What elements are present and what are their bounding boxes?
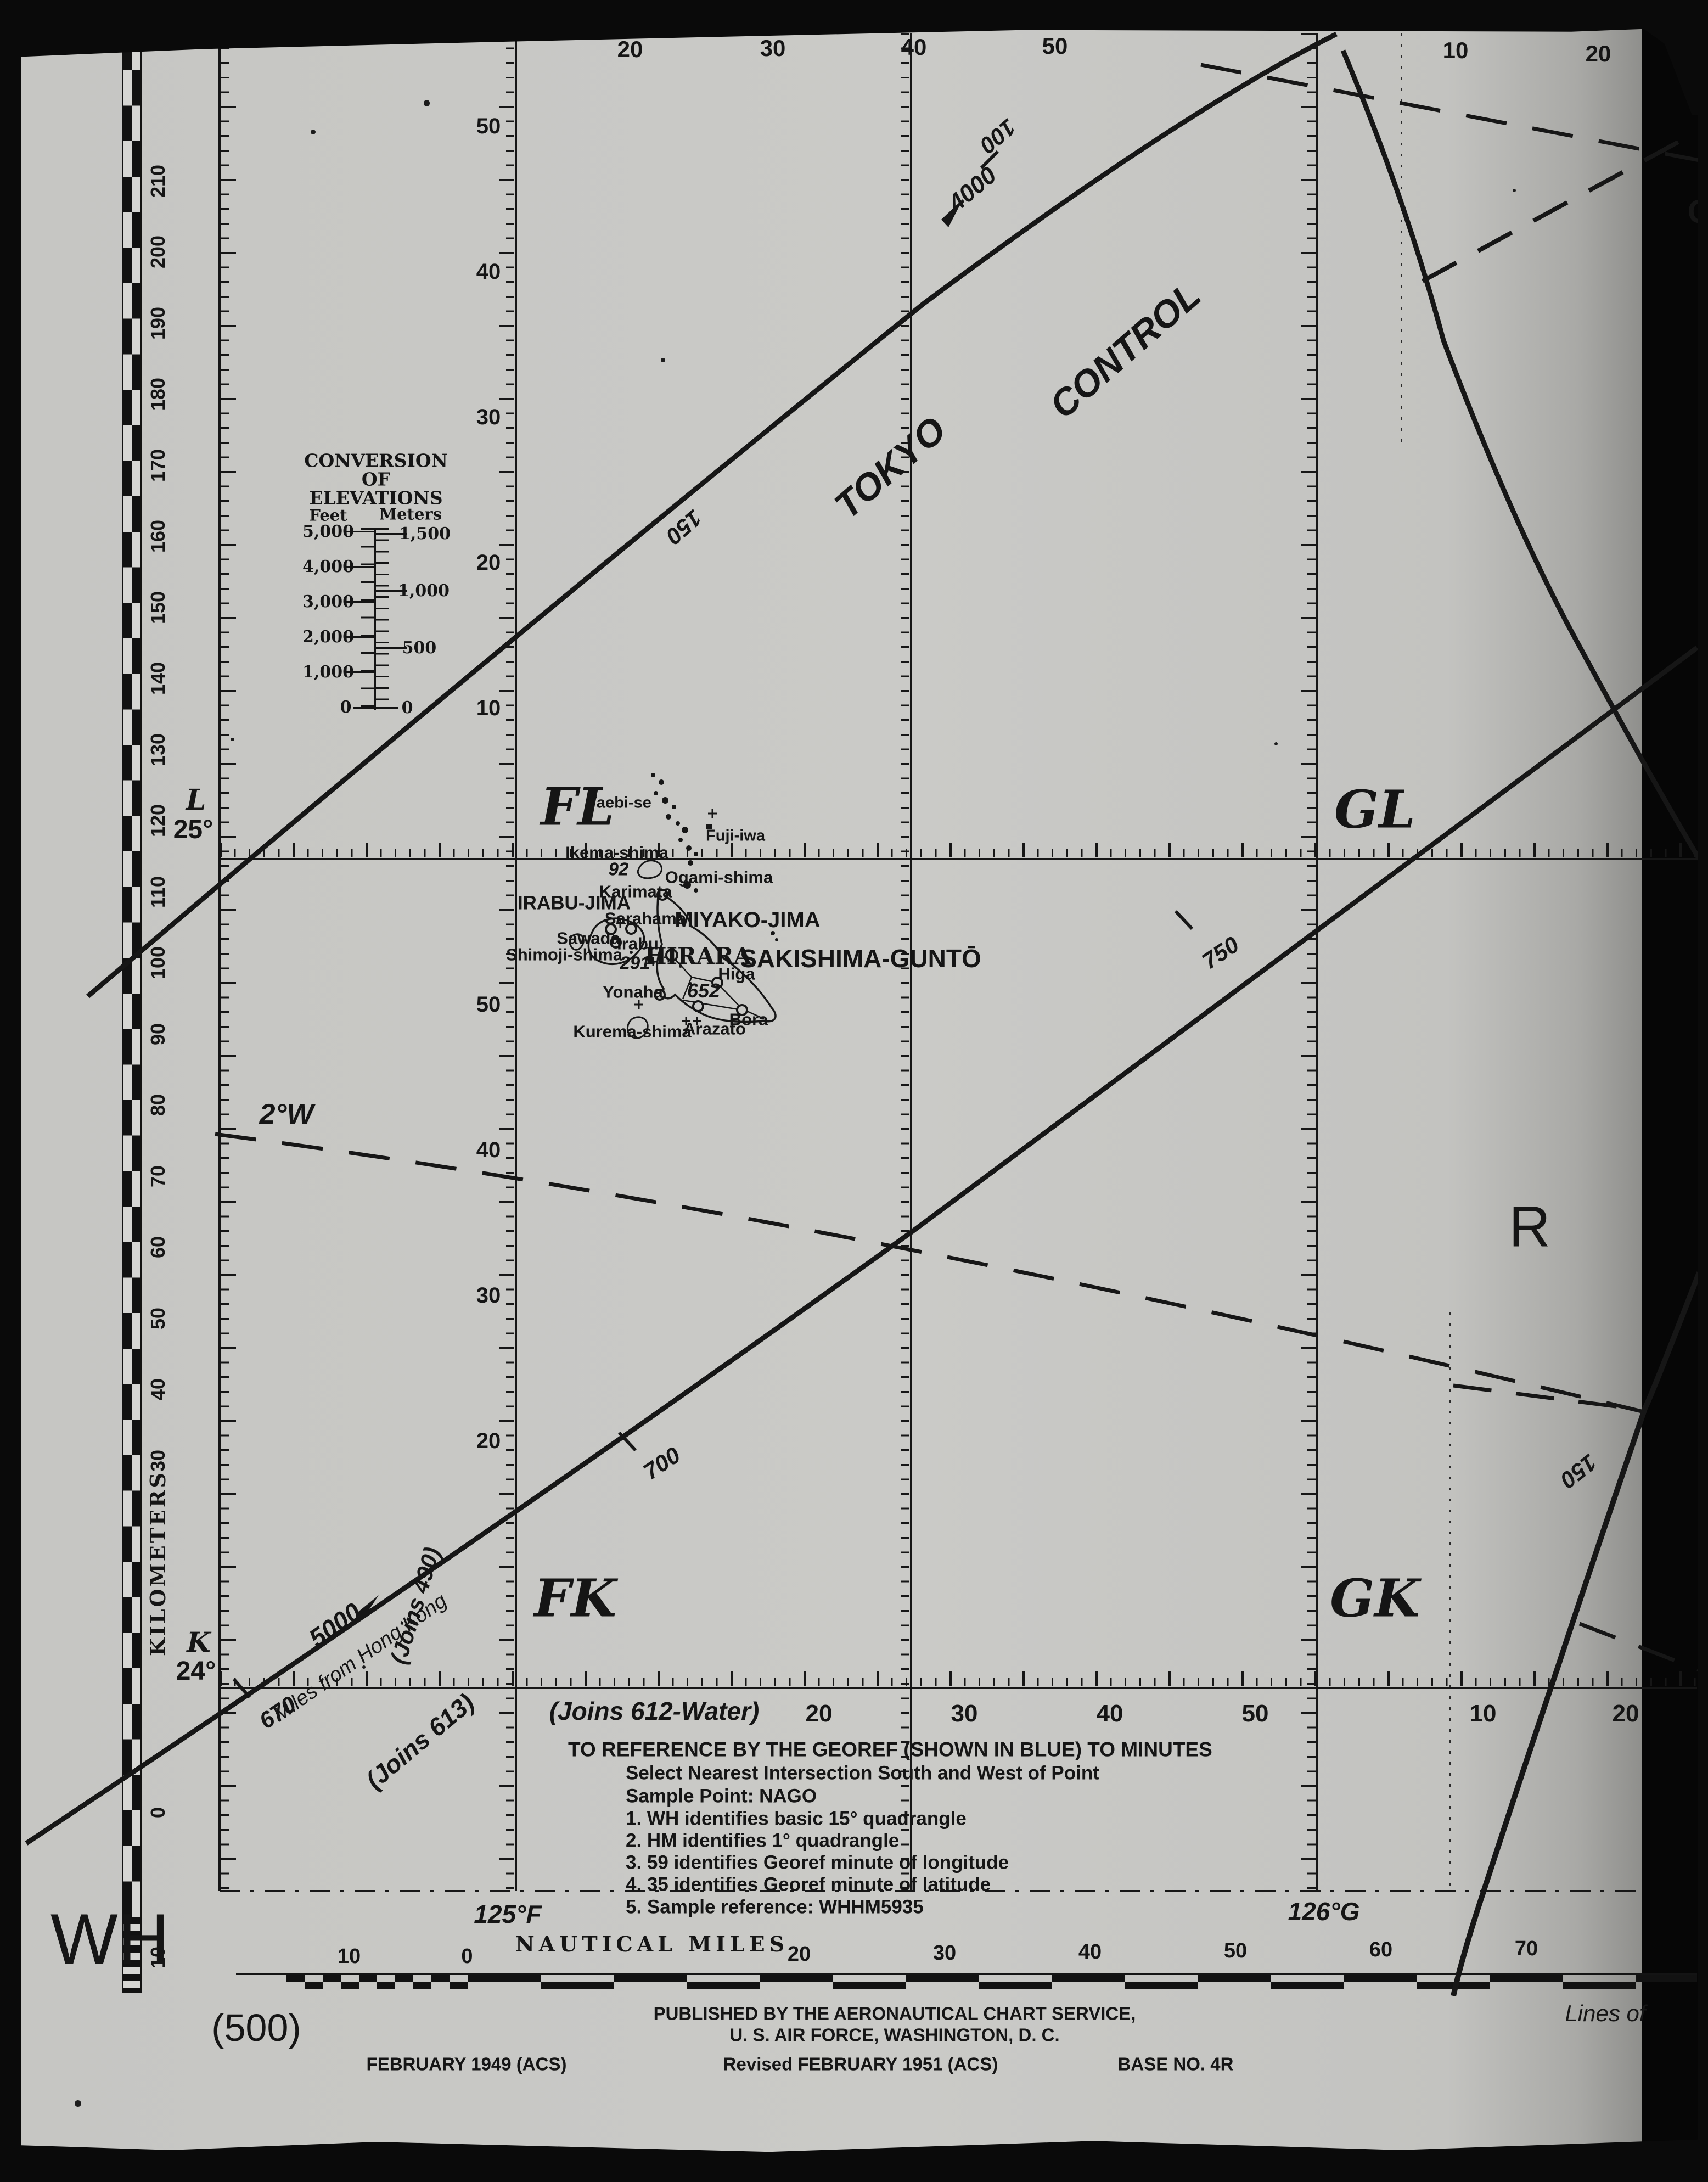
km-0: 0 xyxy=(148,1807,168,1818)
georef-note-title: TO REFERENCE BY THE GEOREF (SHOWN IN BLU… xyxy=(568,1740,1212,1760)
legend-title-2: OF xyxy=(362,470,390,489)
georef-note-item1: 1. WH identifies basic 15° quadrangle xyxy=(626,1809,967,1828)
km-50: 50 xyxy=(148,1308,168,1330)
route-bottom-right xyxy=(1453,1272,1699,1996)
place-ogami-shima: Ogami-shima xyxy=(665,869,773,886)
georef-cell-GK: GK xyxy=(1330,1573,1420,1625)
meters-1000: 1,000 xyxy=(398,583,450,599)
bottom-minute-20b: 20 xyxy=(1613,1702,1639,1726)
km-210: 210 xyxy=(148,165,168,198)
legend-title-1: CONVERSION xyxy=(304,452,448,470)
km-100: 100 xyxy=(148,946,168,979)
lat-minute-40s: 40 xyxy=(476,1139,501,1161)
nm-70: 70 xyxy=(1515,1938,1538,1959)
bottom-minute-10: 10 xyxy=(1470,1702,1497,1726)
km-40: 40 xyxy=(148,1378,168,1400)
coastline-ikema xyxy=(638,861,662,878)
lat-minute-50s: 50 xyxy=(476,994,501,1016)
place-shimoji-shima: Shimoji-shima xyxy=(506,946,622,963)
pub-line-2: U. S. AIR FORCE, WASHINGTON, D. C. xyxy=(729,2026,1059,2044)
dashed-line-top-a xyxy=(1201,65,1699,160)
feet-0: 0 xyxy=(340,699,352,716)
km-130: 130 xyxy=(148,733,168,766)
pub-date: FEBRUARY 1949 (ACS) xyxy=(367,2055,567,2073)
pub-revised: Revised FEBRUARY 1951 (ACS) xyxy=(723,2055,998,2073)
nm-50: 50 xyxy=(1224,1940,1247,1961)
place-yaebi-se: Yaebi-se xyxy=(587,795,651,811)
scan-border-right xyxy=(1698,0,1708,2182)
place-arazato: Arazato xyxy=(683,1020,746,1037)
route-top-right xyxy=(1343,51,1699,859)
legend-feet-header: Feet xyxy=(309,508,347,524)
feet-1000: 1,000 xyxy=(302,664,354,681)
joins-612-water: (Joins 612-Water) xyxy=(549,1698,760,1724)
georef-note-item4: 4. 35 identifies Georef minute of latitu… xyxy=(626,1875,991,1894)
km-70: 70 xyxy=(148,1165,168,1187)
pub-line-1: PUBLISHED BY THE AERONAUTICAL CHART SERV… xyxy=(654,2005,1136,2023)
georef-cell-FK: FK xyxy=(534,1573,616,1625)
scan-speck xyxy=(75,2100,81,2107)
km-30: 30 xyxy=(148,1450,168,1472)
scan-speck xyxy=(424,100,430,106)
km-160: 160 xyxy=(148,520,168,553)
georef-note-line2: Select Nearest Intersection South and We… xyxy=(626,1764,1099,1783)
feet-4000: 4,000 xyxy=(302,559,354,575)
lat-value-24: 24° xyxy=(176,1658,216,1685)
dashed-line-top-b xyxy=(1423,131,1699,281)
nm-40: 40 xyxy=(1078,1942,1102,1962)
scan-speck xyxy=(661,358,665,362)
bottom-minute-50: 50 xyxy=(1242,1702,1269,1726)
lat-minute-10n: 10 xyxy=(476,697,501,719)
lat-minute-30n: 30 xyxy=(476,406,501,428)
km-190: 190 xyxy=(148,307,168,340)
route-hong-kong xyxy=(26,648,1697,1843)
scan-speck xyxy=(1274,742,1278,745)
nm-60: 60 xyxy=(1369,1939,1392,1960)
lat-minute-40n: 40 xyxy=(476,261,501,283)
georef-note-item2: 2. HM identifies 1° quadrangle xyxy=(626,1831,899,1850)
route-tokyo-control xyxy=(88,34,1336,996)
bottom-minute-40: 40 xyxy=(1097,1702,1123,1726)
nm-scale-title: NAUTICAL MILES xyxy=(515,1934,789,1955)
km-90: 90 xyxy=(148,1023,168,1045)
georef-note-item5: 5. Sample reference: WHHM5935 xyxy=(626,1898,924,1917)
meters-0: 0 xyxy=(402,700,413,716)
sheet-scale-500: (500) xyxy=(211,2009,301,2047)
scan-border-left xyxy=(0,0,21,2152)
feet-2000: 2,000 xyxy=(302,629,354,646)
km-60: 60 xyxy=(148,1236,168,1258)
georef-note-item3: 3. 59 identifies Georef minute of longit… xyxy=(626,1853,1009,1872)
km-170: 170 xyxy=(148,449,168,482)
km-scale-title: KILOMETERS xyxy=(148,1471,168,1656)
pub-base: BASE NO. 4R xyxy=(1118,2055,1234,2073)
nm-0: 0 xyxy=(461,1946,473,1967)
mileage-tick-750 xyxy=(1176,911,1192,929)
km-140: 140 xyxy=(148,662,168,695)
top-minute-50: 50 xyxy=(1042,35,1068,58)
place-sakishima-gunto: SAKISHIMA-GUNTŌ xyxy=(740,946,981,971)
lat-minute-30s: 30 xyxy=(476,1284,501,1306)
bottom-minute-30: 30 xyxy=(951,1702,978,1726)
km-200: 200 xyxy=(148,235,168,268)
isogonic-line-2W xyxy=(215,1134,1644,1412)
bottom-minute-20: 20 xyxy=(806,1702,833,1726)
scan-speck xyxy=(311,130,316,134)
scan-speck xyxy=(362,1665,366,1669)
elev-652: 652 xyxy=(687,981,720,1001)
place-kurema-shima: Kurema-shima xyxy=(573,1023,691,1040)
scan-speck xyxy=(231,738,234,741)
georef-cell-R: R xyxy=(1509,1198,1550,1256)
top-minute-20: 20 xyxy=(617,38,643,61)
km-10: 10 xyxy=(148,1947,168,1968)
meters-500: 500 xyxy=(402,640,437,657)
mileage-tick-670 xyxy=(234,1679,250,1697)
km-80: 80 xyxy=(148,1094,168,1116)
legend-meters-header: Meters xyxy=(379,507,442,523)
top-minute-20b: 20 xyxy=(1586,42,1611,65)
lon-label-125F: 125°F xyxy=(474,1901,541,1927)
chart-scan: 2030405010202030405010205040302010504030… xyxy=(0,0,1708,2182)
lat-letter-L: L xyxy=(186,786,206,815)
georef-cell-GL: GL xyxy=(1334,784,1415,836)
nm-10: 10 xyxy=(338,1946,361,1967)
place-sarahama: Sarahama xyxy=(605,910,686,927)
elev-92: 92 xyxy=(609,860,629,878)
feet-5000: 5,000 xyxy=(302,524,354,540)
margin-lines-of: Lines of xyxy=(1565,2002,1645,2025)
top-minute-40: 40 xyxy=(901,36,927,59)
lon-label-126G: 126°G xyxy=(1288,1899,1360,1924)
place-sawada: Sawada xyxy=(557,930,620,947)
lat-minute-20s: 20 xyxy=(476,1430,501,1452)
lat-letter-K: K xyxy=(187,1629,210,1656)
isogonic-2w: 2°W xyxy=(260,1100,314,1129)
lat-value-25: 25° xyxy=(173,817,214,843)
dashed-line-br-b xyxy=(1580,1624,1699,1670)
place-yonaha: Yonaha xyxy=(603,984,663,1001)
km-150: 150 xyxy=(148,591,168,624)
lat-minute-50n: 50 xyxy=(476,115,501,137)
km-120: 120 xyxy=(148,804,168,837)
scan-speck xyxy=(1513,189,1516,192)
top-minute-30: 30 xyxy=(760,37,786,60)
georef-note-line3: Sample Point: NAGO xyxy=(626,1787,817,1806)
place-fuji-iwa: Fuji-iwa xyxy=(706,828,765,844)
top-minute-10: 10 xyxy=(1443,39,1469,62)
meters-1500: 1,500 xyxy=(399,526,451,542)
lat-minute-20n: 20 xyxy=(476,552,501,574)
place-miyako-jima: MIYAKO-JIMA xyxy=(675,909,820,931)
nm-20: 20 xyxy=(788,1944,811,1965)
km-180: 180 xyxy=(148,378,168,411)
nm-30: 30 xyxy=(933,1943,956,1964)
feet-3000: 3,000 xyxy=(302,594,354,610)
km-110: 110 xyxy=(148,876,168,908)
